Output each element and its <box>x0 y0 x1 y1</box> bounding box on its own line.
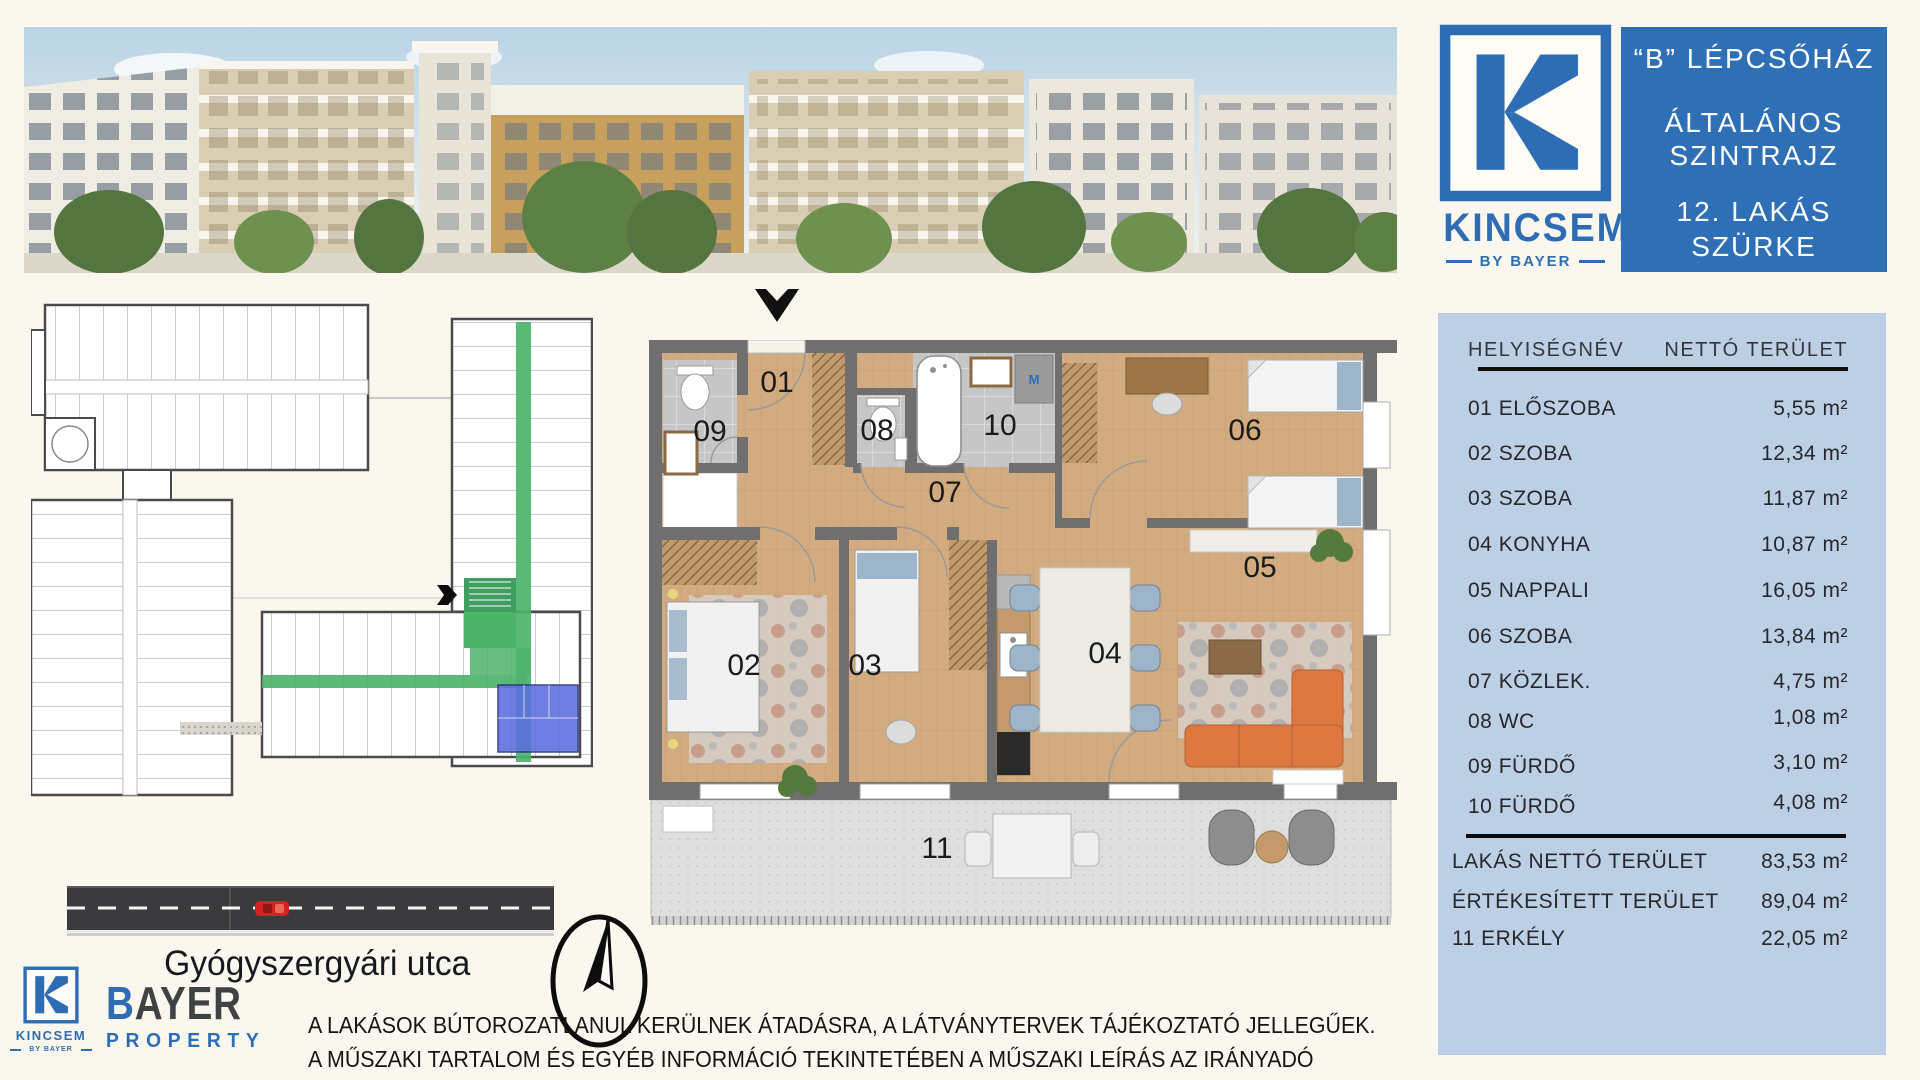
apartment-floorplan: M H MG <box>649 340 1397 930</box>
table-row-area: 4,75 m² <box>1773 670 1848 694</box>
summary-rule <box>1466 834 1846 838</box>
drawing-type-line1: ÁLTALÁNOS <box>1621 107 1887 139</box>
keyplan-sidewalk <box>180 722 262 735</box>
disclaimer-line-2: A MŰSZAKI TARTALOM ÉS EGYÉB INFORMÁCIÓ T… <box>308 1042 1145 1076</box>
svg-text:05: 05 <box>1243 551 1276 584</box>
svg-text:10: 10 <box>983 409 1016 442</box>
byline-dash <box>1446 260 1472 263</box>
svg-text:08: 08 <box>860 414 893 447</box>
keyplan-unit-highlight <box>498 685 578 752</box>
svg-text:09: 09 <box>693 415 726 448</box>
building-tower <box>412 41 498 273</box>
table-row-label: 08 WC <box>1468 710 1535 734</box>
table-row-label: 02 SZOBA <box>1468 442 1572 466</box>
table-row-label: 01 ELŐSZOBA <box>1468 397 1616 421</box>
byline-dash <box>10 1049 21 1051</box>
table-row-label: 04 KONYHA <box>1468 533 1590 557</box>
table-row-area: 3,10 m² <box>1773 751 1848 775</box>
dining-04 <box>1010 568 1160 732</box>
table-row-area: 1,08 m² <box>1773 706 1848 730</box>
lounge-chair <box>1289 810 1334 865</box>
bayer-property-label: PROPERTY <box>106 1030 265 1053</box>
svg-text:04: 04 <box>1088 637 1121 670</box>
ground-strip <box>24 253 1397 273</box>
sheet-title-panel: “B” LÉPCSŐHÁZ ÁLTALÁNOS SZINTRAJZ 12. LA… <box>1621 27 1887 272</box>
kincsem-logo-small <box>22 966 80 1024</box>
column-header-area: NETTÓ TERÜLET <box>1664 339 1848 362</box>
room-area-table: HELYISÉGNÉV NETTÓ TERÜLET 01 ELŐSZOBA 5,… <box>1438 313 1886 1055</box>
svg-text:02: 02 <box>727 649 760 682</box>
svg-text:06: 06 <box>1228 414 1261 447</box>
keyplan-schematic <box>31 298 593 798</box>
table-row-label: 03 SZOBA <box>1468 487 1572 511</box>
table-row-label: 07 KÖZLEK. <box>1468 670 1591 694</box>
table-row-label: 10 FÜRDŐ <box>1468 795 1576 819</box>
kincsem-byline: BY BAYER <box>1438 253 1613 270</box>
table-row-label: 05 NAPPALI <box>1468 579 1589 603</box>
balcony-11 <box>651 800 1391 925</box>
shower-area <box>663 473 737 529</box>
wardrobe <box>949 540 987 670</box>
header-rule <box>1478 367 1848 371</box>
svg-text:11: 11 <box>921 832 952 865</box>
byline-dash <box>1579 260 1605 263</box>
lounge-chair <box>1209 810 1254 865</box>
entrance-door <box>748 340 805 353</box>
summary-row-area: 89,04 m² <box>1761 890 1848 914</box>
table-row-area: 11,87 m² <box>1763 487 1848 511</box>
table-row-area: 12,34 m² <box>1761 442 1848 466</box>
disclaimer-text: A LAKÁSOK BÚTOROZATLANUL KERÜLNEK ÁTADÁS… <box>308 1008 1145 1076</box>
table-row-area: 5,55 m² <box>1773 397 1848 421</box>
building-panorama-image <box>24 27 1397 273</box>
summary-row-label: ÉRTÉKESÍTETT TERÜLET <box>1452 890 1719 914</box>
arrow-down-icon <box>754 289 800 323</box>
wardrobe <box>812 353 845 465</box>
column-header-room: HELYISÉGNÉV <box>1468 339 1624 362</box>
table-row-area: 4,08 m² <box>1773 791 1848 815</box>
stove <box>997 732 1030 775</box>
table-row-area: 10,87 m² <box>1761 533 1848 557</box>
summary-row-label: LAKÁS NETTÓ TERÜLET <box>1452 850 1707 874</box>
car-icon <box>255 901 289 916</box>
summary-row-area: 83,53 m² <box>1761 850 1848 874</box>
round-table <box>1256 831 1288 863</box>
kincsem-byline-small: BY BAYER <box>10 1046 92 1053</box>
svg-text:03: 03 <box>848 649 881 682</box>
wardrobe <box>662 540 757 585</box>
wardrobe <box>1062 363 1097 463</box>
apartment-number: 12. LAKÁS <box>1621 196 1887 228</box>
kincsem-wordmark-small: KINCSEM <box>10 1028 92 1043</box>
table-row-label: 06 SZOBA <box>1468 625 1572 649</box>
balcony-table <box>993 814 1071 878</box>
kincsem-logo <box>1438 23 1613 203</box>
summary-row-label: 11 ERKÉLY <box>1452 927 1565 951</box>
svg-text:M: M <box>1029 372 1040 387</box>
svg-text:01: 01 <box>760 366 793 399</box>
apartment-color: SZÜRKE <box>1621 231 1887 263</box>
summary-row-area: 22,05 m² <box>1761 927 1848 951</box>
table-row-label: 09 FÜRDŐ <box>1468 755 1576 779</box>
disclaimer-line-1: A LAKÁSOK BÚTOROZATLANUL KERÜLNEK ÁTADÁS… <box>308 1008 1145 1042</box>
table-row-area: 13,84 m² <box>1761 625 1848 649</box>
svg-text:07: 07 <box>928 476 961 509</box>
kincsem-wordmark: KINCSEM <box>1443 206 1608 251</box>
byline-dash <box>81 1049 92 1051</box>
staircase-title: “B” LÉPCSŐHÁZ <box>1621 43 1887 75</box>
keyplan-top-wing <box>31 305 368 500</box>
bayer-logo: BAYER <box>106 980 242 1026</box>
drawing-type-line2: SZINTRAJZ <box>1621 140 1887 172</box>
table-row-area: 16,05 m² <box>1761 579 1848 603</box>
road-graphic <box>67 886 554 938</box>
